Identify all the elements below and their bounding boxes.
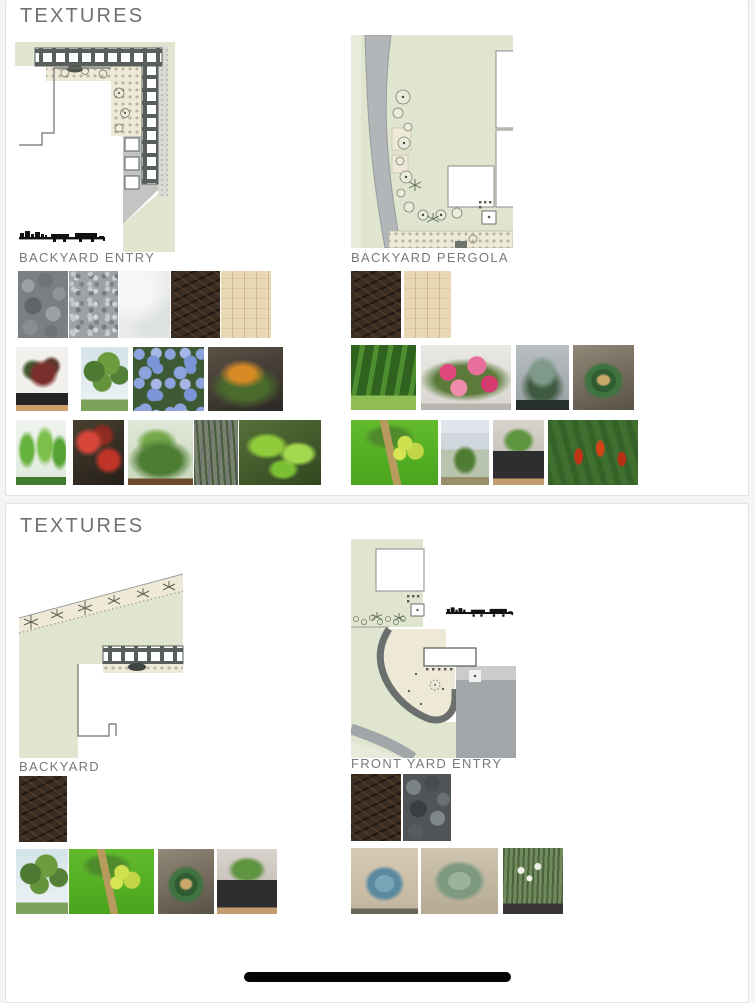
silver-fan-palm-image [516,345,569,410]
backyard-entry-plan [15,38,175,252]
texture-swatch-row [18,271,271,338]
potted-green-shrub-image [217,849,277,914]
fruiting-palm-lawn-image [69,849,154,914]
textures-board-top: TEXTURES [5,0,749,496]
palm-trees-nursery-image [16,849,68,914]
page-title: TEXTURES [20,515,144,538]
home-indicator[interactable] [244,972,511,982]
white-iris-grass-image [503,848,563,914]
green-shrub-bed-image [128,420,193,485]
plan-label-backyard-entry: BACKYARD ENTRY [19,250,155,265]
green-hedge-rows-image [351,345,416,410]
dark-brown-mulch-image [351,271,401,338]
page-title: TEXTURES [20,5,144,28]
red-leaf-philodendron-image [16,347,68,411]
red-caladium-image [73,420,124,485]
giant-leaf-plant-image [239,420,321,485]
fruiting-palm-lawn-image [351,420,438,485]
potted-green-shrub-image [493,420,544,485]
plant-image-row [16,849,277,914]
blue-agave-image [351,848,418,914]
dark-brown-mulch-image [351,774,401,841]
green-ti-plants-image [16,420,66,485]
texture-swatch-row [19,776,67,842]
sago-palm-image [158,849,214,914]
agave-attenuata-image [421,848,498,914]
plant-image-row [16,420,321,485]
plan-label-backyard-pergola: BACKYARD PERGOLA [351,250,509,265]
blue-plumbago-image [133,347,204,411]
purple-flax-grass-image [194,420,238,485]
gray-river-pebbles-image [18,271,68,338]
yard-shrub-image [441,420,489,485]
red-heliconia-image [548,420,638,485]
plant-image-row [16,347,283,411]
backyard-pergola-plan [351,35,513,248]
light-wood-decking-image [221,271,271,338]
dark-brown-mulch-image [19,776,67,842]
light-wood-decking-image [404,271,451,338]
gray-gravel-image [69,271,118,338]
dark-brown-mulch-image [171,271,220,338]
plan-label-backyard: BACKYARD [19,759,100,774]
palm-trees-nursery-image [81,347,128,411]
plan-label-front-yard-entry: FRONT YARD ENTRY [351,756,502,771]
backyard-plan [19,546,184,758]
textures-board-page: { "panels": [ { "title": "TEXTURES", "se… [0,0,755,1000]
orange-bromeliads-image [208,347,283,411]
scale-elevation-glyph [446,607,513,616]
black-river-pebbles-image [403,774,451,841]
plant-image-row [351,345,634,410]
front-yard-entry-plan [351,539,516,758]
plant-image-row [351,420,638,485]
plant-image-row [351,848,563,914]
pink-bougainvillea-image [421,345,511,410]
texture-swatch-row [351,774,451,841]
sago-palm-image [573,345,634,410]
texture-swatch-row [351,271,451,338]
textures-board-bottom: TEXTURES BACKYARD [5,503,749,1003]
white-concrete-image [119,271,170,338]
